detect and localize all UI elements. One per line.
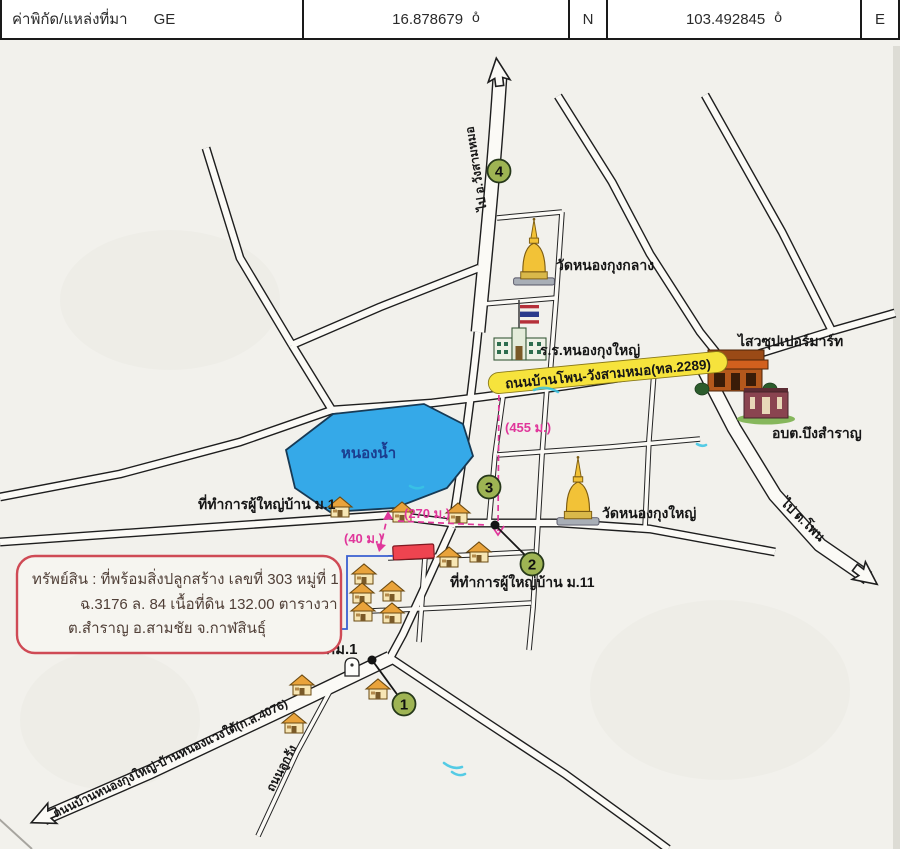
- cyan-mark: [452, 772, 465, 775]
- school-building-icon: [494, 328, 546, 360]
- latitude-value: 16.878679: [392, 11, 463, 28]
- coordinates-header: ค่าพิกัด/แหล่งที่มา GE 16.878679 o̊ N 10…: [0, 0, 900, 40]
- longitude-hemisphere: E: [862, 0, 900, 38]
- svg-text:4: 4: [495, 164, 504, 181]
- paper-blotch: [60, 230, 280, 370]
- house-icon: [380, 581, 404, 601]
- property-parcel: [393, 544, 435, 560]
- paper-crease: [0, 818, 32, 849]
- route-455m-dashes: [498, 380, 499, 531]
- lake-label: หนองน้ำ: [341, 441, 396, 462]
- coordinates-source: GE: [154, 11, 176, 28]
- thai-flag-icon: [520, 305, 539, 324]
- house-icon: [366, 679, 390, 699]
- sao-label: อบต.บึงสำราญ: [772, 425, 862, 442]
- sao-office: อบต.บึงสำราญ: [737, 388, 862, 442]
- house-icon: [350, 583, 374, 603]
- house-icon: [290, 675, 314, 695]
- degree-symbol: o̊: [774, 9, 782, 25]
- pagoda-icon: [514, 218, 555, 285]
- school: ร.ร.หนองกุงใหญ่: [494, 300, 640, 360]
- wat-yai-label: วัดหนองกุงใหญ่: [602, 504, 696, 522]
- road-segment: [489, 397, 503, 523]
- school-label: ร.ร.หนองกุงใหญ่: [540, 341, 640, 359]
- degree-symbol: o̊: [472, 9, 480, 25]
- property-note: ทรัพย์สิน : ที่พร้อมสิ่งปลูกสร้าง เลขที่…: [17, 556, 341, 653]
- svg-text:2: 2: [528, 557, 536, 574]
- marker-2: 2: [521, 553, 544, 576]
- village-head-m11-label: ที่ทำการผู้ใหญ่บ้าน ม.11: [450, 572, 595, 591]
- road-segment: [0, 410, 332, 497]
- coordinates-title: ค่าพิกัด/แหล่งที่มา: [12, 7, 128, 31]
- house-icon: [380, 603, 404, 623]
- milestone-icon: [345, 658, 359, 676]
- svg-text:3: 3: [485, 480, 493, 497]
- wat-klang-label: วัดหนองกุงกลาง: [556, 257, 654, 274]
- milestone-dot: [350, 663, 353, 666]
- government-building-icon: [737, 388, 795, 425]
- pagoda-icon: [557, 456, 599, 525]
- reference-dot: [368, 656, 377, 665]
- reference-dot: [491, 521, 500, 530]
- distance-455m: (455 ม.): [505, 420, 551, 435]
- road-segment: [705, 95, 832, 331]
- road-segment: [292, 268, 479, 345]
- road-segment: [292, 345, 332, 410]
- scanned-location-map: หนองน้ำ วัดหนองกุงกลาง วัดหนองกุงใหญ่: [0, 0, 900, 849]
- svg-text:1: 1: [400, 697, 408, 714]
- marker-1: 1: [393, 693, 416, 716]
- road-segment: [497, 439, 700, 455]
- latitude-hemisphere: N: [570, 0, 608, 38]
- distance-40m: (40 ม.): [344, 531, 383, 546]
- supermarket-label: ไสวซุปเปอร์มาร์ท: [736, 332, 843, 350]
- coordinates-header-label-cell: ค่าพิกัด/แหล่งที่มา GE: [0, 0, 304, 38]
- house-icon: [467, 542, 491, 562]
- scan-edge-shadow: [893, 46, 900, 849]
- property-note-line3: ต.สำราญ อ.สามชัย จ.กาฬสินธุ์: [68, 620, 266, 638]
- property-note-line2: ฉ.3176 ล. 84 เนื้อที่ดิน 132.00 ตารางวา: [80, 593, 338, 613]
- cyan-mark: [697, 444, 706, 446]
- longitude-value: 103.492845: [686, 11, 765, 28]
- marker-4: 4: [488, 160, 511, 183]
- paper-blotch: [590, 600, 850, 780]
- latitude-cell: 16.878679 o̊: [304, 0, 570, 38]
- cyan-mark: [444, 763, 462, 768]
- longitude-cell: 103.492845 o̊: [608, 0, 862, 38]
- house-icon: [351, 601, 375, 621]
- marker-3: 3: [478, 476, 501, 499]
- wat-nong-kung-yai: วัดหนองกุงใหญ่: [557, 456, 696, 525]
- property-note-line1: ทรัพย์สิน : ที่พร้อมสิ่งปลูกสร้าง เลขที่…: [32, 568, 339, 588]
- house-icon: [352, 564, 376, 584]
- distance-270m: (270 ม.): [404, 506, 450, 521]
- village-head-m1-label: ที่ทำการผู้ใหญ่บ้าน ม.1: [198, 494, 336, 513]
